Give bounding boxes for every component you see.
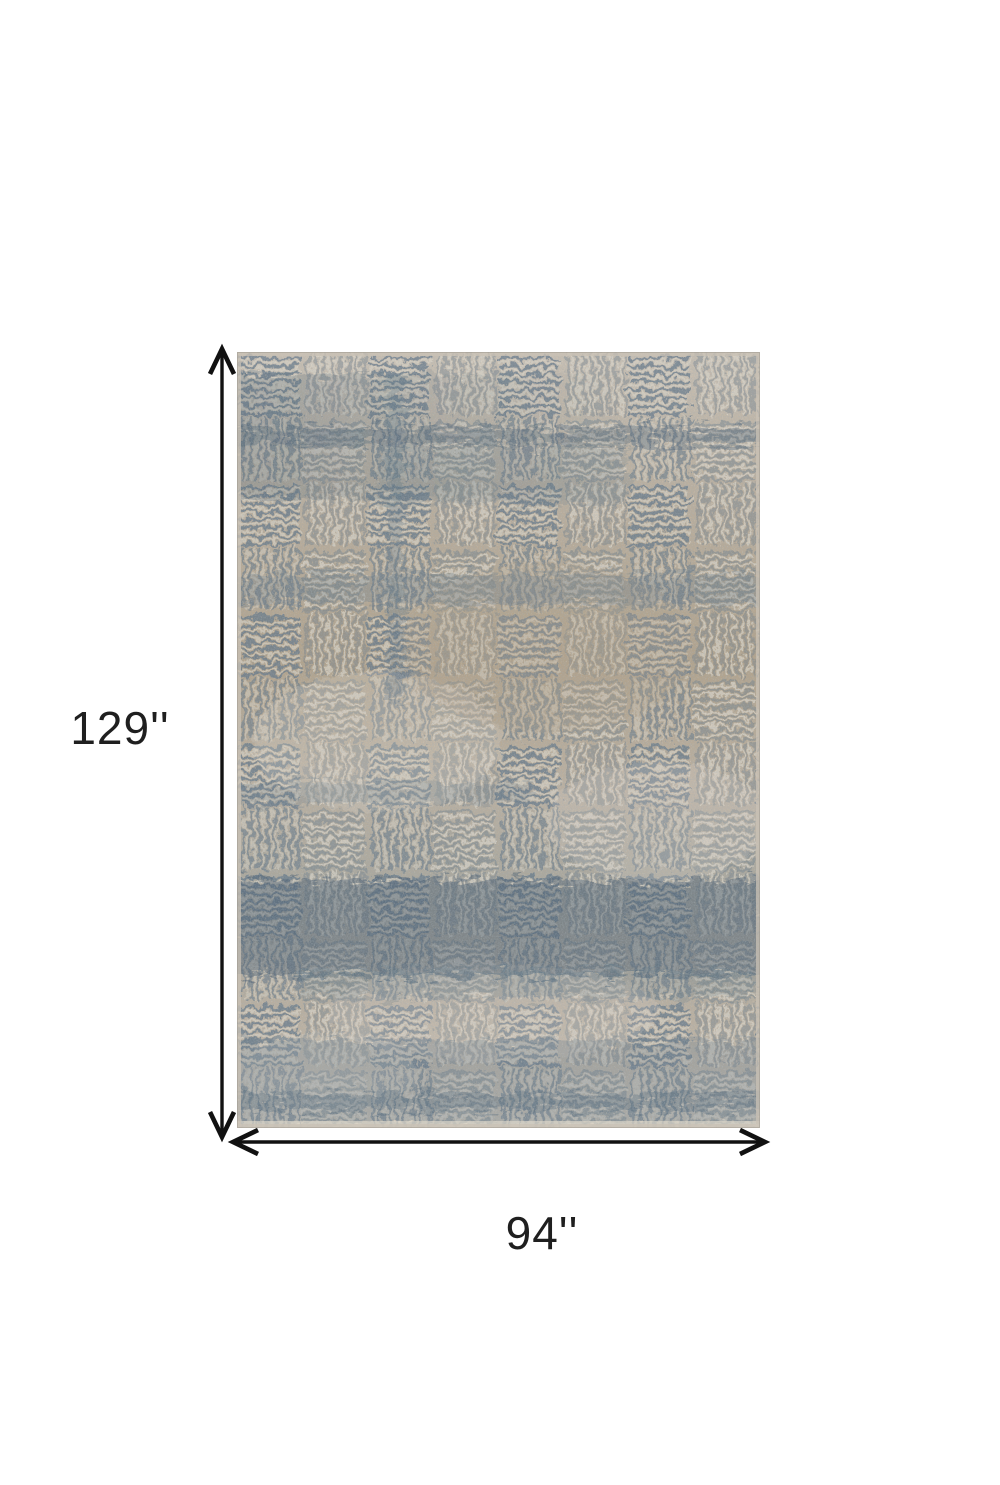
height-dimension-label: 129'' [38, 701, 202, 755]
width-dimension-arrow [226, 1122, 772, 1162]
rug-texture [237, 352, 760, 1128]
product-dimension-image: 129'' 94'' [0, 0, 1000, 1485]
rug-image [237, 352, 760, 1128]
width-dimension-label: 94'' [460, 1206, 624, 1260]
height-dimension-arrow [202, 342, 242, 1144]
